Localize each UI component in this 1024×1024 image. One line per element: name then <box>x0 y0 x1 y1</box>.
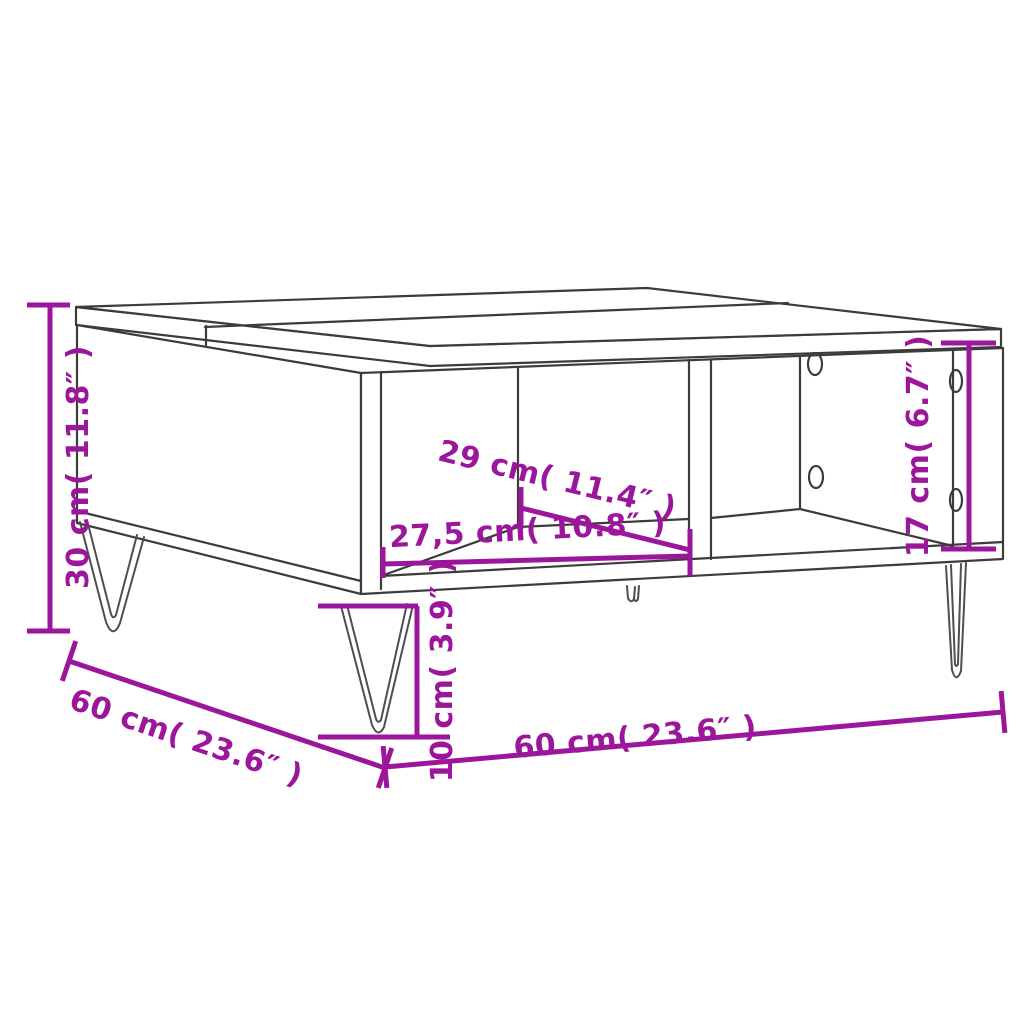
hairpin-leg-back-right <box>627 586 639 601</box>
hairpin-leg-front-right <box>946 563 966 677</box>
diagram-canvas: 30 cm( 11.8″ ) 17 cm( 6.7″ ) 29 cm( 11.4… <box>0 0 1024 1024</box>
dimension-compartment-height-label: 17 cm( 6.7″ ) <box>901 335 936 558</box>
dimension-depth: 60 cm( 23.6″ ) <box>62 641 391 794</box>
dimension-leg-height-label: 10 cm( 3.9″ ) <box>425 560 460 783</box>
carcass-left-face <box>77 325 361 594</box>
dimension-height-label: 30 cm( 11.8″ ) <box>61 345 96 589</box>
furniture-dimension-diagram: 30 cm( 11.8″ ) 17 cm( 6.7″ ) 29 cm( 11.4… <box>0 0 1024 1024</box>
dimension-width-label: 60 cm( 23.6″ ) <box>512 709 758 766</box>
dimension-width: 60 cm( 23.6″ ) <box>383 691 1005 788</box>
hairpin-leg-front-left <box>341 604 413 733</box>
dimension-height: 30 cm( 11.8″ ) <box>27 305 96 631</box>
